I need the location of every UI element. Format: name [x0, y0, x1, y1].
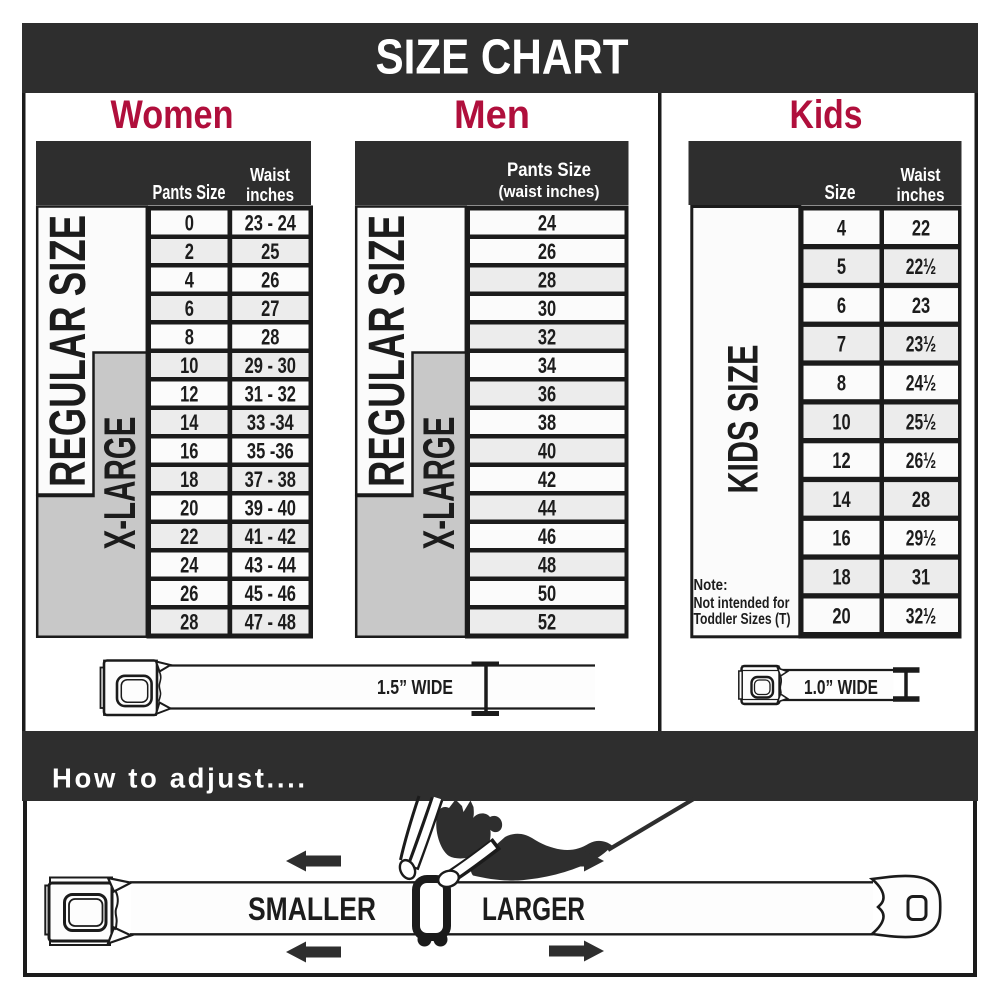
svg-text:(waist inches): (waist inches) [499, 182, 600, 201]
svg-text:10: 10 [180, 353, 198, 378]
svg-text:48: 48 [538, 553, 556, 578]
svg-text:Size: Size [825, 182, 856, 204]
svg-text:23: 23 [912, 293, 930, 318]
svg-text:35 -36: 35 -36 [247, 439, 294, 464]
svg-text:Women: Women [111, 93, 234, 137]
svg-text:inches: inches [246, 185, 294, 205]
svg-text:4: 4 [185, 268, 195, 293]
svg-text:24: 24 [180, 553, 199, 578]
svg-text:46: 46 [538, 524, 556, 549]
svg-text:29½: 29½ [906, 526, 937, 551]
svg-text:43 - 44: 43 - 44 [245, 553, 297, 578]
svg-text:25½: 25½ [906, 409, 937, 434]
svg-text:32½: 32½ [906, 603, 937, 628]
svg-text:26: 26 [261, 268, 279, 293]
svg-text:34: 34 [538, 353, 557, 378]
svg-text:8: 8 [837, 370, 846, 395]
svg-text:24: 24 [538, 211, 557, 236]
svg-text:7: 7 [837, 332, 846, 357]
svg-text:REGULAR SIZE: REGULAR SIZE [358, 215, 415, 487]
svg-text:39 - 40: 39 - 40 [245, 496, 296, 521]
svg-text:14: 14 [180, 410, 199, 435]
svg-text:12: 12 [832, 448, 850, 473]
svg-text:6: 6 [837, 293, 846, 318]
svg-text:28: 28 [261, 325, 279, 350]
svg-text:45 - 46: 45 - 46 [245, 581, 296, 606]
svg-text:Pants Size: Pants Size [507, 159, 591, 181]
svg-text:40: 40 [538, 439, 556, 464]
svg-text:26½: 26½ [906, 448, 937, 473]
svg-text:42: 42 [538, 467, 556, 492]
svg-text:37 - 38: 37 - 38 [245, 467, 296, 492]
svg-text:inches: inches [897, 185, 945, 205]
svg-text:Note:: Note: [694, 577, 728, 594]
svg-text:24½: 24½ [906, 370, 937, 395]
svg-text:47 - 48: 47 - 48 [245, 610, 296, 635]
svg-text:27: 27 [261, 296, 279, 321]
svg-text:18: 18 [180, 467, 198, 492]
svg-text:LARGER: LARGER [482, 891, 585, 927]
svg-text:Pants Size: Pants Size [153, 182, 226, 204]
svg-text:25: 25 [261, 239, 279, 264]
svg-text:5: 5 [837, 254, 846, 279]
svg-text:12: 12 [180, 382, 198, 407]
svg-text:33 -34: 33 -34 [247, 410, 294, 435]
svg-text:Toddler Sizes (T): Toddler Sizes (T) [694, 611, 791, 628]
svg-text:1.0” WIDE: 1.0” WIDE [804, 677, 878, 699]
svg-text:26: 26 [180, 581, 198, 606]
svg-text:28: 28 [538, 268, 556, 293]
svg-text:29 - 30: 29 - 30 [245, 353, 296, 378]
svg-text:How to adjust....: How to adjust.... [52, 763, 305, 794]
svg-text:28: 28 [180, 610, 198, 635]
svg-text:18: 18 [832, 564, 850, 589]
svg-text:32: 32 [538, 325, 556, 350]
svg-text:38: 38 [538, 410, 556, 435]
svg-text:28: 28 [912, 487, 930, 512]
svg-text:22: 22 [912, 215, 930, 240]
svg-text:X-LARGE: X-LARGE [96, 417, 145, 550]
svg-text:14: 14 [832, 487, 851, 512]
svg-text:Waist: Waist [901, 165, 941, 185]
svg-text:52: 52 [538, 610, 556, 635]
svg-text:Not intended for: Not intended for [694, 595, 790, 612]
svg-text:16: 16 [180, 439, 198, 464]
svg-text:50: 50 [538, 581, 556, 606]
svg-text:22: 22 [180, 524, 198, 549]
svg-text:1.5” WIDE: 1.5” WIDE [377, 677, 453, 699]
svg-text:2: 2 [185, 239, 194, 264]
svg-text:10: 10 [832, 409, 850, 434]
svg-text:22½: 22½ [906, 254, 937, 279]
svg-text:23 - 24: 23 - 24 [245, 211, 297, 236]
svg-text:8: 8 [185, 325, 194, 350]
svg-text:36: 36 [538, 382, 556, 407]
svg-text:4: 4 [837, 215, 847, 240]
svg-text:SMALLER: SMALLER [248, 891, 376, 927]
svg-text:Men: Men [454, 93, 530, 137]
svg-text:41 - 42: 41 - 42 [245, 524, 296, 549]
svg-text:23½: 23½ [906, 332, 937, 357]
svg-text:KIDS SIZE: KIDS SIZE [720, 345, 768, 494]
svg-text:44: 44 [538, 496, 557, 521]
svg-text:6: 6 [185, 296, 194, 321]
svg-text:REGULAR SIZE: REGULAR SIZE [39, 215, 96, 487]
svg-text:Kids: Kids [790, 93, 863, 137]
svg-text:SIZE CHART: SIZE CHART [376, 30, 629, 85]
svg-text:20: 20 [180, 496, 198, 521]
svg-text:0: 0 [185, 211, 194, 236]
svg-text:20: 20 [832, 603, 850, 628]
svg-text:30: 30 [538, 296, 556, 321]
svg-text:31: 31 [912, 564, 930, 589]
svg-text:16: 16 [832, 526, 850, 551]
svg-text:31 - 32: 31 - 32 [245, 382, 296, 407]
svg-text:Waist: Waist [250, 165, 290, 185]
svg-text:X-LARGE: X-LARGE [415, 417, 464, 550]
svg-text:26: 26 [538, 239, 556, 264]
